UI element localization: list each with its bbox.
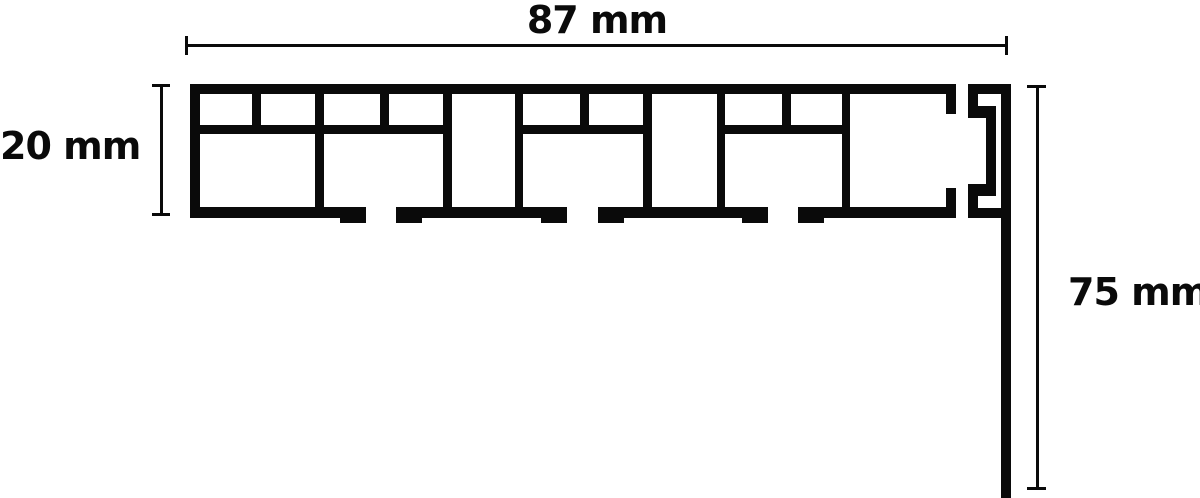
- profile-top-wall: [190, 84, 956, 94]
- tick-right: [1005, 36, 1008, 55]
- profile-outline: [190, 84, 1011, 498]
- dimension-label-drop: 75 mm: [1068, 272, 1200, 312]
- channel-inner-wall: [986, 106, 996, 196]
- profile-right-top-bar: [968, 84, 1011, 94]
- bottom-hook-leg: [946, 188, 956, 208]
- profile-right-wall-fascia-drop: [1001, 84, 1011, 498]
- dimension-line-drop-75mm: [1027, 85, 1046, 490]
- tick-left: [185, 36, 188, 55]
- cap-bottom: [1027, 487, 1046, 490]
- dimension-line-height-20mm: [152, 84, 170, 216]
- cap-top: [152, 84, 170, 87]
- top-hook-leg: [946, 94, 956, 114]
- dimension-label-height: 20 mm: [0, 126, 126, 166]
- cap-top: [1027, 85, 1046, 88]
- cap-bottom: [152, 213, 170, 216]
- profile-bottom-wall-with-glider-slots: [190, 207, 1011, 223]
- profile-left-wall: [190, 94, 200, 218]
- technical-drawing-canvas: 87 mm 20 mm 75 mm: [0, 0, 1200, 498]
- dimension-label-width: 87 mm: [497, 0, 697, 40]
- profile-end-hook-channel: [946, 94, 996, 208]
- profile-cross-section-drawing: [0, 0, 1200, 498]
- bottom-hook-finger: [968, 188, 978, 208]
